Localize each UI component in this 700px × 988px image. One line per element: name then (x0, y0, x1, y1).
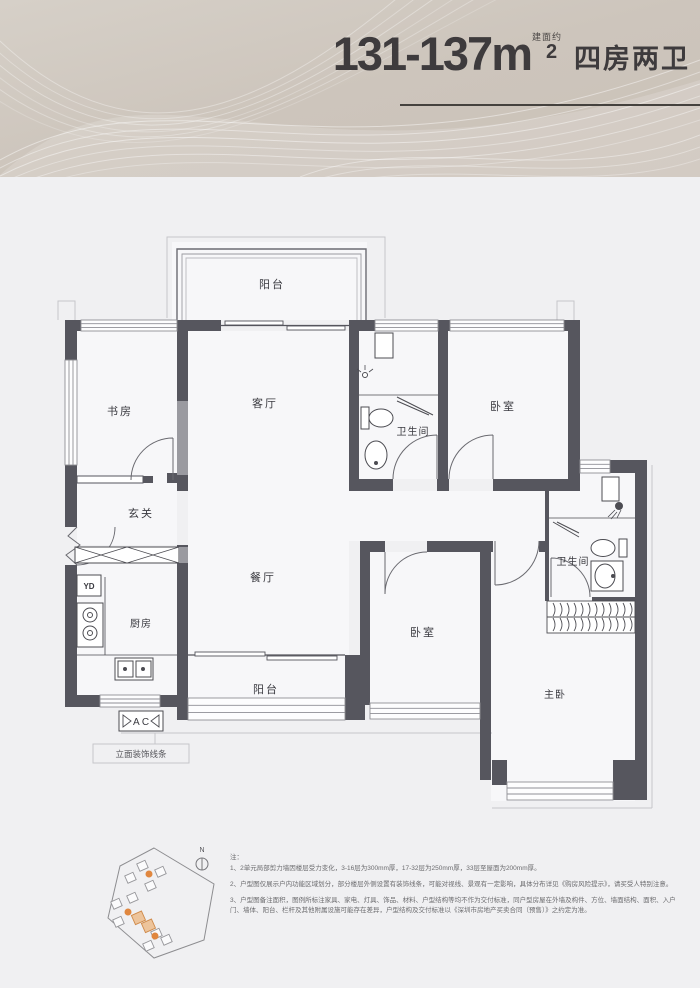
title-underline (400, 104, 700, 106)
label-living: 客厅 (252, 396, 278, 410)
plan-title: 131-137m 建面约 2 四房两卫 (333, 30, 690, 75)
header-banner: 131-137m 建面约 2 四房两卫 (0, 0, 700, 177)
disclaimer-notes: 注： 1、2单元局部剪力墙因楼层受力变化，3-16层为300mm厚，17-32层… (230, 853, 680, 922)
label-kitchen: 厨房 (130, 617, 152, 630)
label-yd: YD (83, 582, 94, 591)
area-range: 131-137m (333, 32, 531, 75)
label-bedroom1: 卧室 (490, 399, 516, 413)
label-master: 主卧 (544, 688, 566, 701)
compass-label: N (199, 847, 204, 854)
label-dining: 餐厅 (250, 570, 276, 584)
notes-title: 注： (230, 853, 680, 863)
compass: N (196, 847, 208, 870)
label-bath1: 卫生间 (397, 425, 430, 438)
floorplan-drawing: A C 阳台 书房 客厅 卫生间 卧室 玄关 餐厅 厨房 阳台 卧室 卫生间 主… (55, 225, 665, 825)
site-minimap: N (92, 838, 222, 968)
light-wall (177, 401, 188, 475)
label-study: 书房 (107, 405, 133, 418)
label-facade-note: 立面装饰线条 (115, 749, 167, 759)
label-bedroom2: 卧室 (410, 625, 436, 639)
area-unit-block: 建面约 2 (532, 30, 562, 61)
square-superscript: 2 (546, 43, 557, 61)
wardrobe (547, 601, 635, 633)
label-foyer: 玄关 (128, 506, 154, 520)
note-line-3: 3、户型图备注面积，图例所标注家具、家电、灯具、饰品、材料、户型结构等均不作为交… (230, 896, 680, 916)
site-highlighted-buildings (131, 911, 155, 933)
label-balcony-bottom: 阳台 (253, 682, 279, 696)
ac-unit: A C (119, 711, 163, 731)
layout-type: 四房两卫 (574, 46, 690, 75)
ac-label: A C (133, 717, 149, 728)
floorplan-page: { "header": { "area_range": "131-137m", … (0, 0, 700, 988)
study-thin-wall (77, 476, 143, 483)
note-line-1: 1、2单元局部剪力墙因楼层受力变化，3-16层为300mm厚，17-32层为25… (230, 864, 680, 874)
label-bath2: 卫生间 (557, 555, 590, 568)
site-boundary (108, 848, 214, 958)
site-buildings (111, 860, 172, 951)
note-line-2: 2、户型图仅展示户内功能区域划分，部分楼层外侧设置有装饰线条，可能对视线、景观有… (230, 880, 680, 890)
label-balcony-top: 阳台 (259, 277, 285, 291)
